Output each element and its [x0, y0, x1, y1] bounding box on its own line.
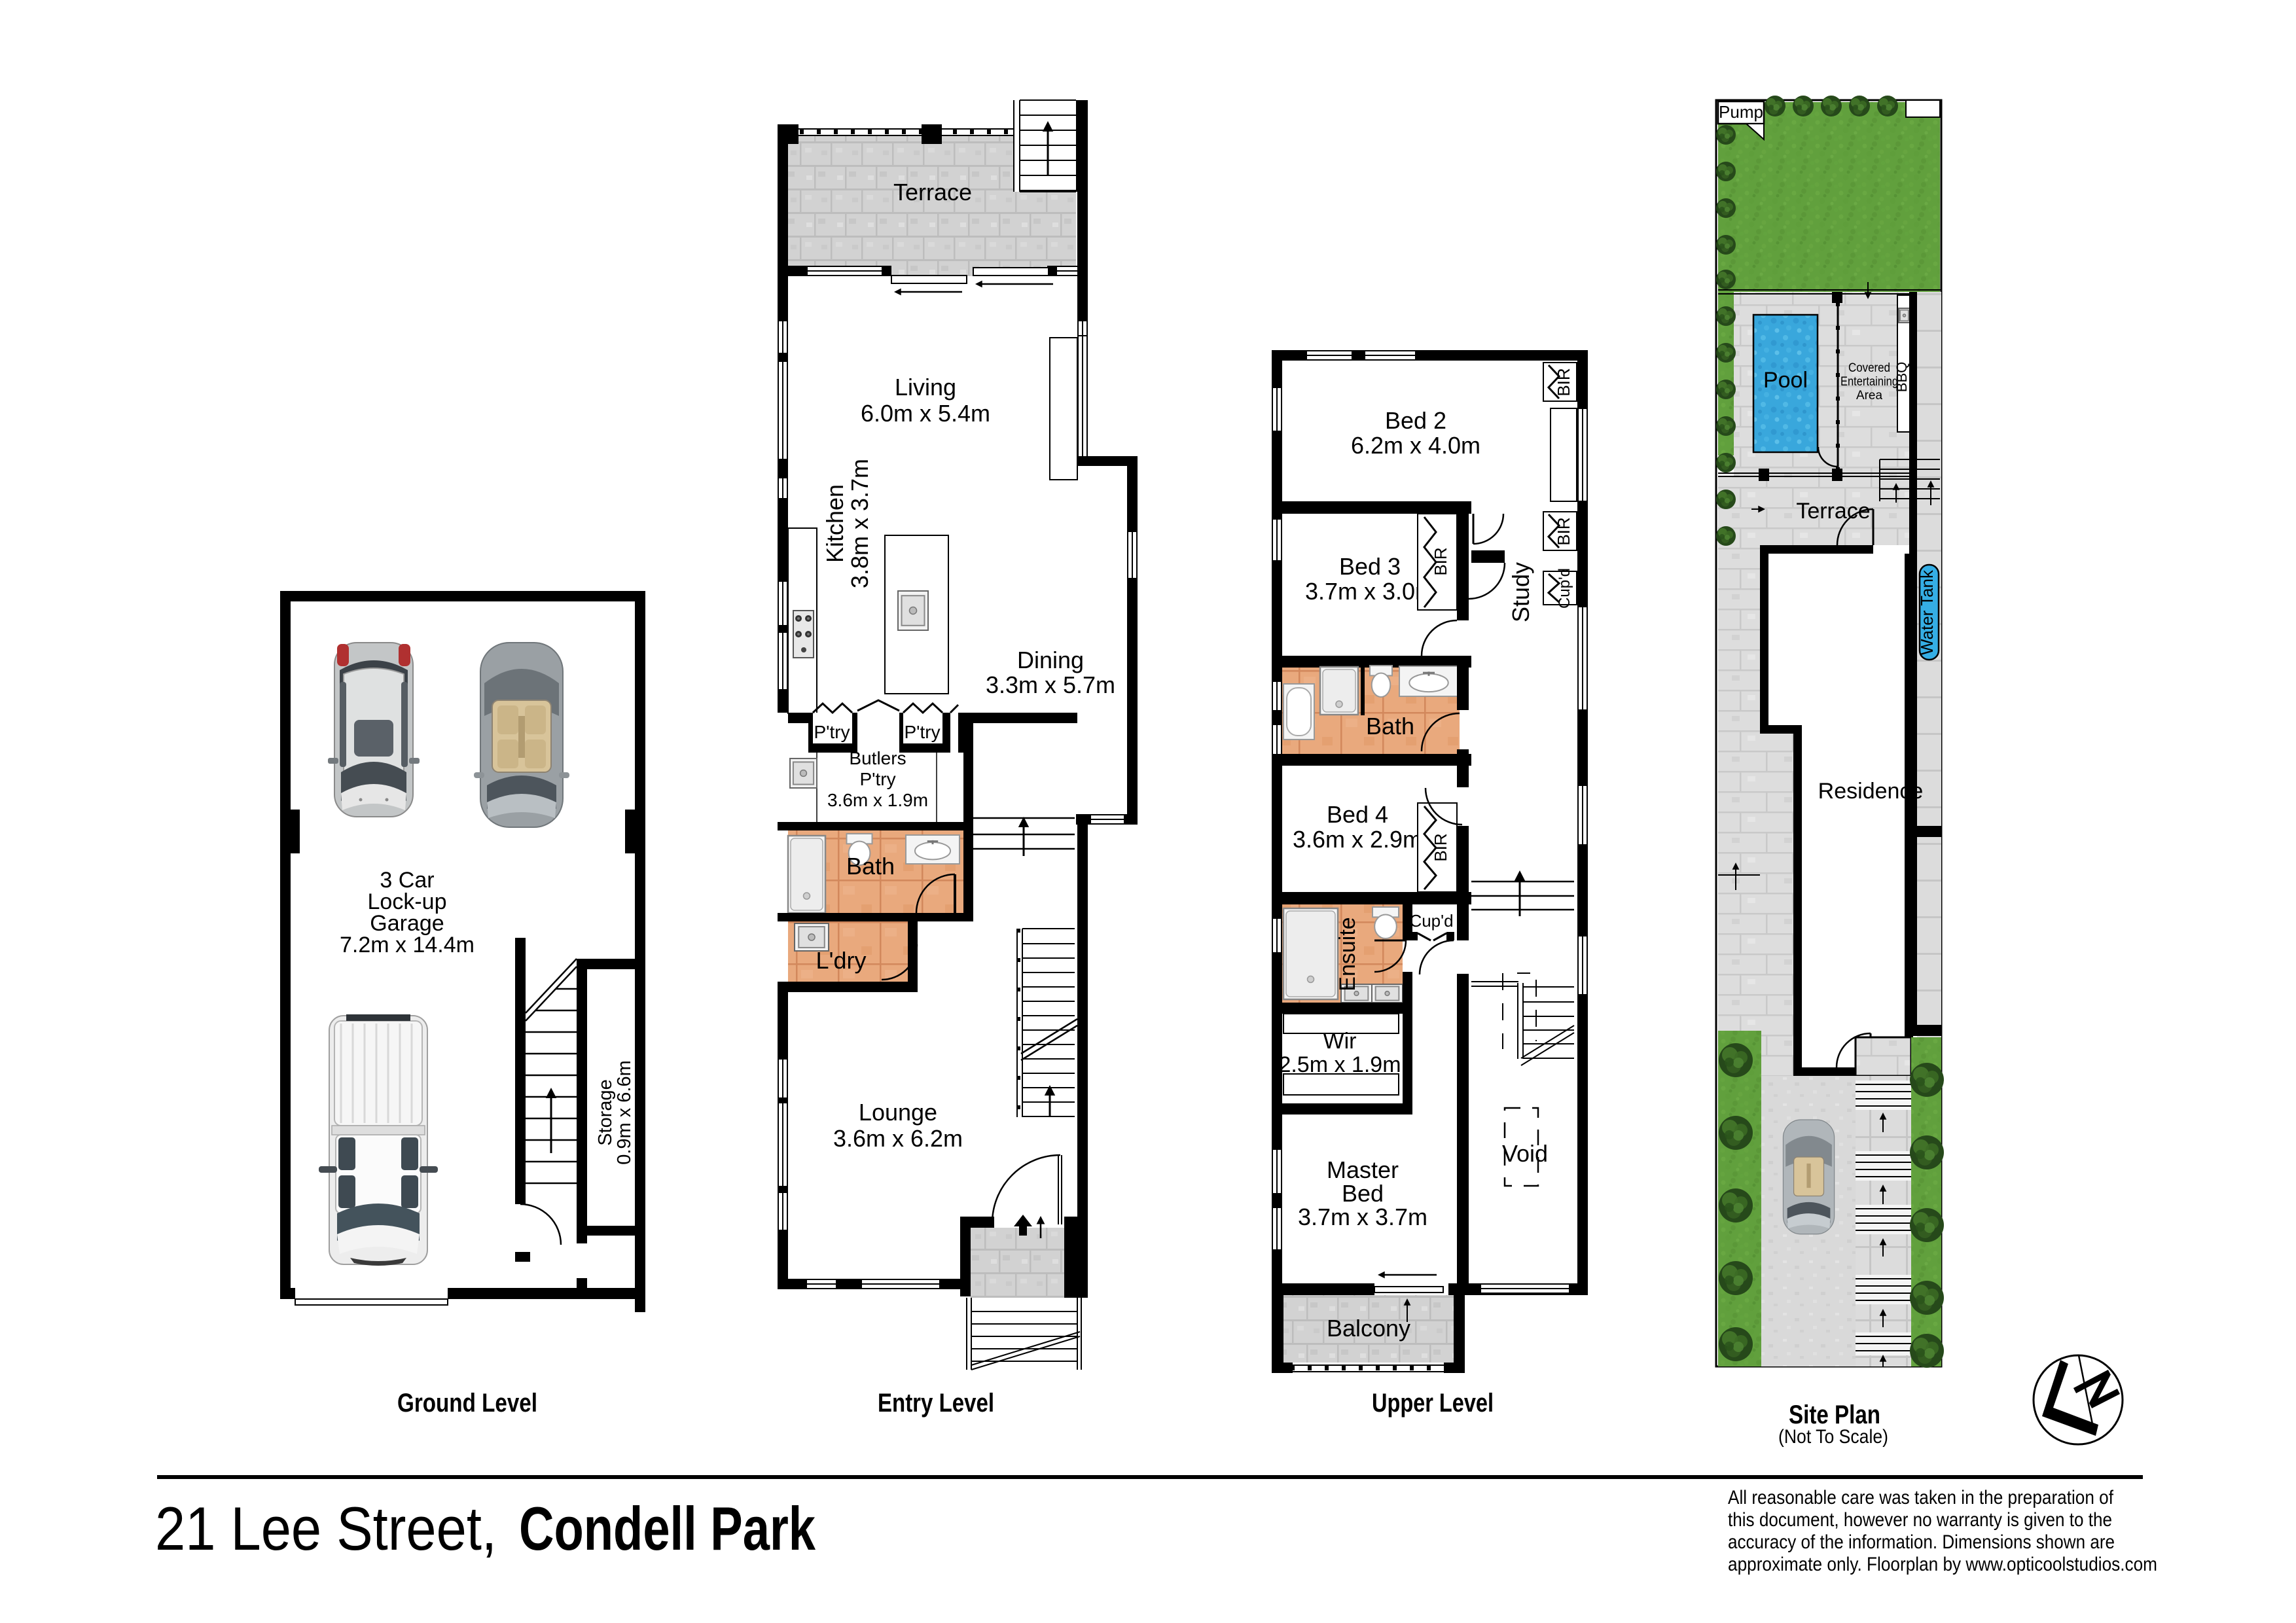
svg-text:Water Tank: Water Tank: [1917, 569, 1937, 655]
svg-text:BIR: BIR: [1554, 368, 1573, 396]
svg-text:approximate only. Floorplan by: approximate only. Floorplan by www.optic…: [1728, 1554, 2157, 1575]
svg-text:Kitchen: Kitchen: [821, 484, 848, 563]
svg-text:Terrace: Terrace: [893, 179, 972, 205]
svg-text:BIR: BIR: [1431, 833, 1450, 861]
svg-text:Bed 4: Bed 4: [1327, 801, 1388, 828]
svg-text:Study: Study: [1507, 562, 1534, 622]
svg-text:P'try: P'try: [859, 769, 895, 789]
svg-text:All reasonable care was taken: All reasonable care was taken in the pre…: [1728, 1487, 2114, 1508]
svg-text:0.9m x 6.6m: 0.9m x 6.6m: [614, 1060, 635, 1165]
svg-text:(Not To Scale): (Not To Scale): [1778, 1426, 1888, 1448]
svg-text:Cup'd: Cup'd: [1409, 911, 1453, 931]
svg-text:Area: Area: [1856, 389, 1882, 402]
svg-text:Bed: Bed: [1342, 1180, 1384, 1207]
svg-text:Butlers: Butlers: [849, 748, 906, 768]
svg-text:6.2m x 4.0m: 6.2m x 4.0m: [1351, 432, 1480, 459]
svg-text:accuracy of the information. D: accuracy of the information. Dimensions …: [1728, 1531, 2115, 1553]
svg-text:Dining: Dining: [1017, 647, 1084, 673]
svg-text:Site Plan: Site Plan: [1789, 1400, 1880, 1429]
svg-text:Covered: Covered: [1848, 361, 1890, 375]
svg-text:Ground Level: Ground Level: [397, 1389, 537, 1418]
svg-text:7.2m x 14.4m: 7.2m x 14.4m: [340, 933, 475, 957]
svg-text:Living: Living: [895, 374, 956, 401]
svg-text:3.3m x 5.7m: 3.3m x 5.7m: [986, 671, 1115, 698]
svg-text:Cup'd: Cup'd: [1556, 568, 1573, 609]
svg-text:P'try: P'try: [814, 722, 850, 742]
svg-text:Master: Master: [1327, 1156, 1399, 1183]
svg-text:3.7m x 3.0m: 3.7m x 3.0m: [1305, 578, 1435, 605]
svg-text:P'try: P'try: [904, 722, 940, 742]
svg-text:Bed 2: Bed 2: [1385, 407, 1446, 434]
svg-text:Upper Level: Upper Level: [1372, 1389, 1494, 1418]
svg-text:Pool: Pool: [1763, 368, 1808, 393]
svg-text:21 Lee Street,: 21 Lee Street,: [155, 1494, 497, 1563]
svg-text:Bath: Bath: [1366, 713, 1414, 740]
svg-text:Entry Level: Entry Level: [878, 1389, 994, 1418]
svg-text:Condell Park: Condell Park: [519, 1494, 816, 1563]
svg-text:Entertaining: Entertaining: [1840, 375, 1898, 389]
svg-text:BIR: BIR: [1431, 547, 1450, 575]
svg-text:6.0m x 5.4m: 6.0m x 5.4m: [861, 400, 990, 427]
svg-text:3.6m x 6.2m: 3.6m x 6.2m: [833, 1125, 963, 1152]
svg-text:this document, however no warr: this document, however no warranty is gi…: [1728, 1509, 2112, 1531]
svg-text:Void: Void: [1502, 1140, 1548, 1167]
svg-text:Ensuite: Ensuite: [1335, 917, 1360, 991]
svg-text:3.6m x 2.9m: 3.6m x 2.9m: [1293, 826, 1422, 853]
svg-text:3.8m x 3.7m: 3.8m x 3.7m: [846, 459, 873, 588]
svg-text:3.7m x 3.7m: 3.7m x 3.7m: [1298, 1204, 1427, 1230]
svg-text:Residence: Residence: [1818, 779, 1924, 804]
svg-text:Storage: Storage: [595, 1079, 616, 1146]
svg-text:BIR: BIR: [1554, 517, 1573, 545]
svg-text:L'dry: L'dry: [816, 947, 867, 974]
svg-text:3.6m x 1.9m: 3.6m x 1.9m: [827, 790, 928, 810]
svg-text:Lounge: Lounge: [859, 1099, 937, 1126]
svg-text:Pump: Pump: [1719, 102, 1763, 122]
svg-text:Balcony: Balcony: [1327, 1315, 1410, 1342]
svg-text:Wir: Wir: [1323, 1029, 1357, 1054]
svg-text:Bath: Bath: [846, 853, 895, 880]
svg-text:Bed 3: Bed 3: [1339, 553, 1401, 580]
